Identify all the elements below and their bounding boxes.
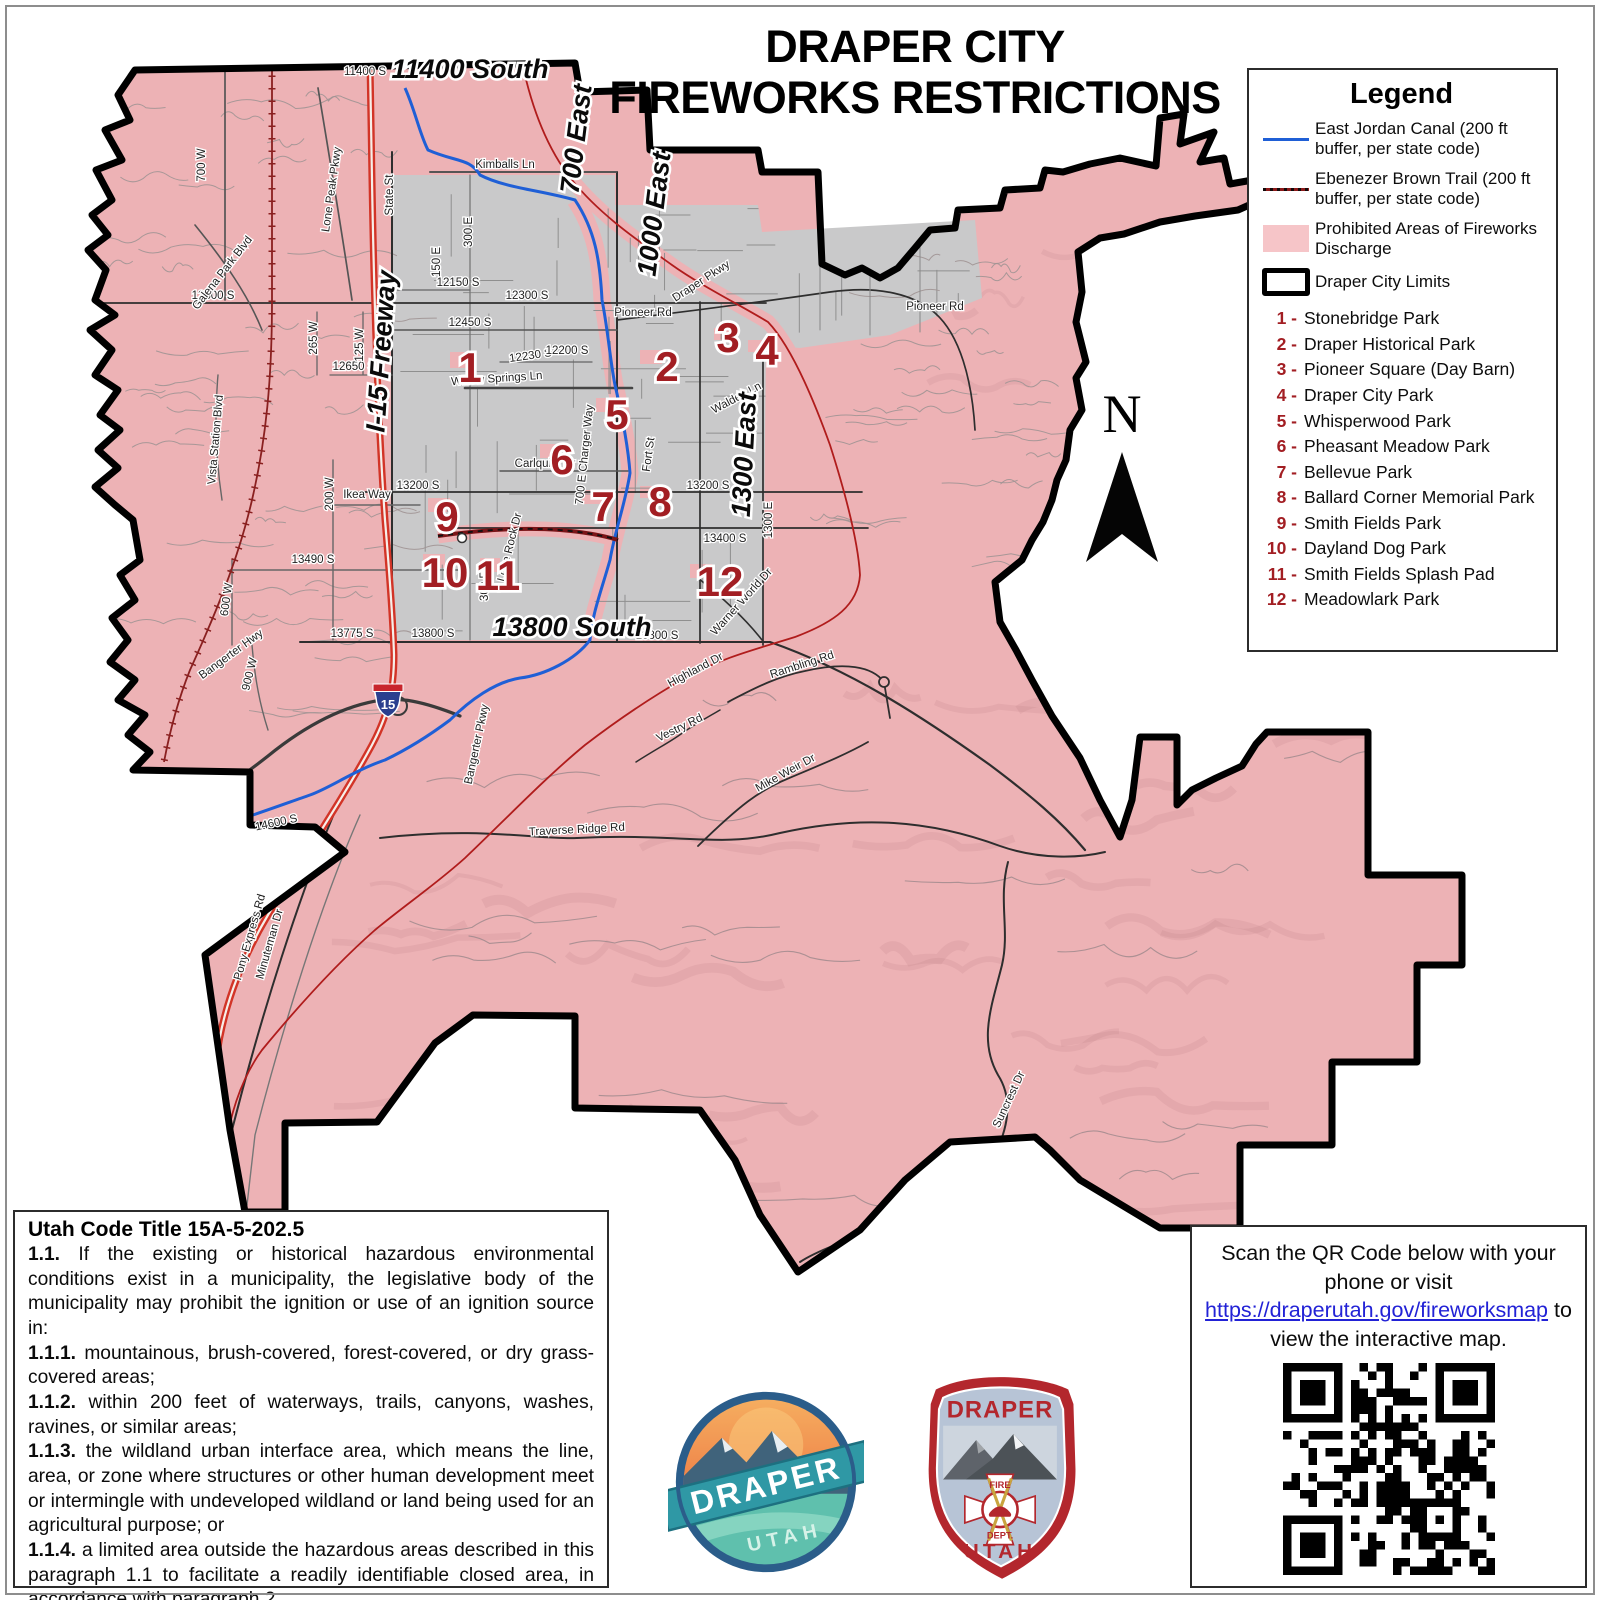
street-label: 11400 S <box>344 66 386 78</box>
code-paragraph: 1.1. If the existing or historical hazar… <box>28 1243 594 1342</box>
fireworks-map-link[interactable]: https://draperutah.gov/fireworksmap <box>1205 1298 1548 1322</box>
fire-badge-top: DRAPER <box>947 1396 1054 1423</box>
street-label: 12300 S <box>506 290 549 302</box>
street-label: 265 W <box>308 321 320 354</box>
qr-instructions: Scan the QR Code below with your phone o… <box>1204 1239 1573 1353</box>
legend: Legend East Jordan Canal (200 ft buffer,… <box>1247 68 1558 652</box>
park-marker-12: 12 <box>697 558 744 605</box>
fire-dept-badge: DRAPER FIRE DEPT. UTAH <box>912 1374 1088 1586</box>
street-label: 13400 S <box>704 533 747 545</box>
title-line-1: DRAPER CITY <box>600 22 1230 73</box>
canal-line-icon <box>1257 138 1315 141</box>
park-list-item: 2 -Draper Historical Park <box>1257 332 1546 358</box>
code-paragraph: 1.1.1. mountainous, brush-covered, fores… <box>28 1342 594 1391</box>
park-list-item: 7 -Bellevue Park <box>1257 460 1546 486</box>
park-list-item: 8 -Ballard Corner Memorial Park <box>1257 485 1546 511</box>
north-label: N <box>1103 384 1142 444</box>
fire-badge-center-top: FIRE <box>989 1480 1010 1490</box>
park-marker-7: 7 <box>591 483 614 530</box>
park-list-item: 1 -Stonebridge Park <box>1257 306 1546 332</box>
street-label: State St <box>384 174 396 216</box>
park-marker-4: 4 <box>755 327 779 374</box>
legend-item-trail: Ebenezer Brown Trail (200 ft buffer, per… <box>1257 169 1546 210</box>
park-marker-6: 6 <box>550 436 573 483</box>
park-marker-2: 2 <box>655 343 678 390</box>
park-list-item: 9 -Smith Fields Park <box>1257 511 1546 537</box>
street-label: Pioneer Rd <box>906 301 964 313</box>
park-marker-3: 3 <box>716 314 739 361</box>
street-label: Ikea Way <box>343 489 391 501</box>
park-marker-11: 11 <box>476 552 520 599</box>
code-paragraph: 1.1.2. within 200 feet of waterways, tra… <box>28 1391 594 1440</box>
street-label: Kimballs Ln <box>475 159 534 171</box>
fire-badge-bottom: UTAH <box>964 1540 1036 1563</box>
prohibited-swatch-icon <box>1257 225 1315 252</box>
north-arrow: N <box>1086 384 1158 562</box>
street-label: 1300 E <box>763 501 775 538</box>
street-label: 13200 S <box>397 480 440 492</box>
park-marker-1: 1 <box>458 344 481 391</box>
park-list-item: 10 -Dayland Dog Park <box>1257 536 1546 562</box>
street-label: 150 E <box>431 247 443 277</box>
fireworks-restrictions-poster: 15 Kimballs LnWillow Springs LnPioneer R… <box>0 0 1600 1600</box>
street-label: 300 E <box>463 217 475 247</box>
legend-item-city-limits: Draper City Limits <box>1257 268 1546 296</box>
qr-code <box>1283 1363 1495 1575</box>
major-street-label: 13800 South <box>492 612 651 642</box>
street-label: Pioneer Rd <box>614 307 672 319</box>
trail-line-icon <box>1257 188 1315 191</box>
page-title: DRAPER CITY FIREWORKS RESTRICTIONS <box>600 22 1230 124</box>
park-marker-10: 10 <box>422 549 469 596</box>
utah-code-box: Utah Code Title 15A-5-202.5 1.1. If the … <box>13 1210 609 1588</box>
park-list-item: 4 -Draper City Park <box>1257 383 1546 409</box>
park-list-item: 5 -Whisperwood Park <box>1257 409 1546 435</box>
street-label: 12450 S <box>449 317 492 329</box>
park-list-item: 12 -Meadowlark Park <box>1257 587 1546 613</box>
code-paragraph: 1.1.3. the wildland urban interface area… <box>28 1440 594 1539</box>
street-label: 13775 S <box>331 628 374 640</box>
park-list-item: 11 -Smith Fields Splash Pad <box>1257 562 1546 588</box>
title-line-2: FIREWORKS RESTRICTIONS <box>600 73 1230 124</box>
park-list: 1 -Stonebridge Park2 -Draper Historical … <box>1257 306 1546 613</box>
street-label: 700 W <box>196 148 208 181</box>
i15-shield-number: 15 <box>381 697 395 712</box>
utah-code-title: Utah Code Title 15A-5-202.5 <box>28 1218 594 1242</box>
street-label: 200 W <box>324 477 336 510</box>
street-label: 12200 S <box>546 345 589 357</box>
street-label: 12150 S <box>437 277 480 289</box>
park-marker-5: 5 <box>605 391 628 438</box>
legend-item-canal: East Jordan Canal (200 ft buffer, per st… <box>1257 119 1546 160</box>
street-label: 125 W <box>354 328 366 361</box>
draper-city-logo: DRAPER UTAH <box>668 1384 864 1580</box>
major-street-label: 11400 South <box>391 54 548 84</box>
park-marker-9: 9 <box>435 493 458 540</box>
fire-badge-center-bottom: DEPT. <box>987 1530 1013 1540</box>
park-list-item: 6 -Pheasant Meadow Park <box>1257 434 1546 460</box>
legend-item-prohibited: Prohibited Areas of Fireworks Discharge <box>1257 219 1546 260</box>
park-list-item: 3 -Pioneer Square (Day Barn) <box>1257 357 1546 383</box>
street-label: 13490 S <box>292 554 335 566</box>
park-marker-8: 8 <box>648 478 671 525</box>
code-paragraph: 1.1.4. a limited area outside the hazard… <box>28 1539 594 1600</box>
street-label: 13200 S <box>687 480 730 492</box>
city-limits-icon <box>1257 268 1315 296</box>
street-label: 13800 S <box>412 628 455 640</box>
legend-title: Legend <box>1257 78 1546 111</box>
qr-box: Scan the QR Code below with your phone o… <box>1190 1225 1587 1588</box>
